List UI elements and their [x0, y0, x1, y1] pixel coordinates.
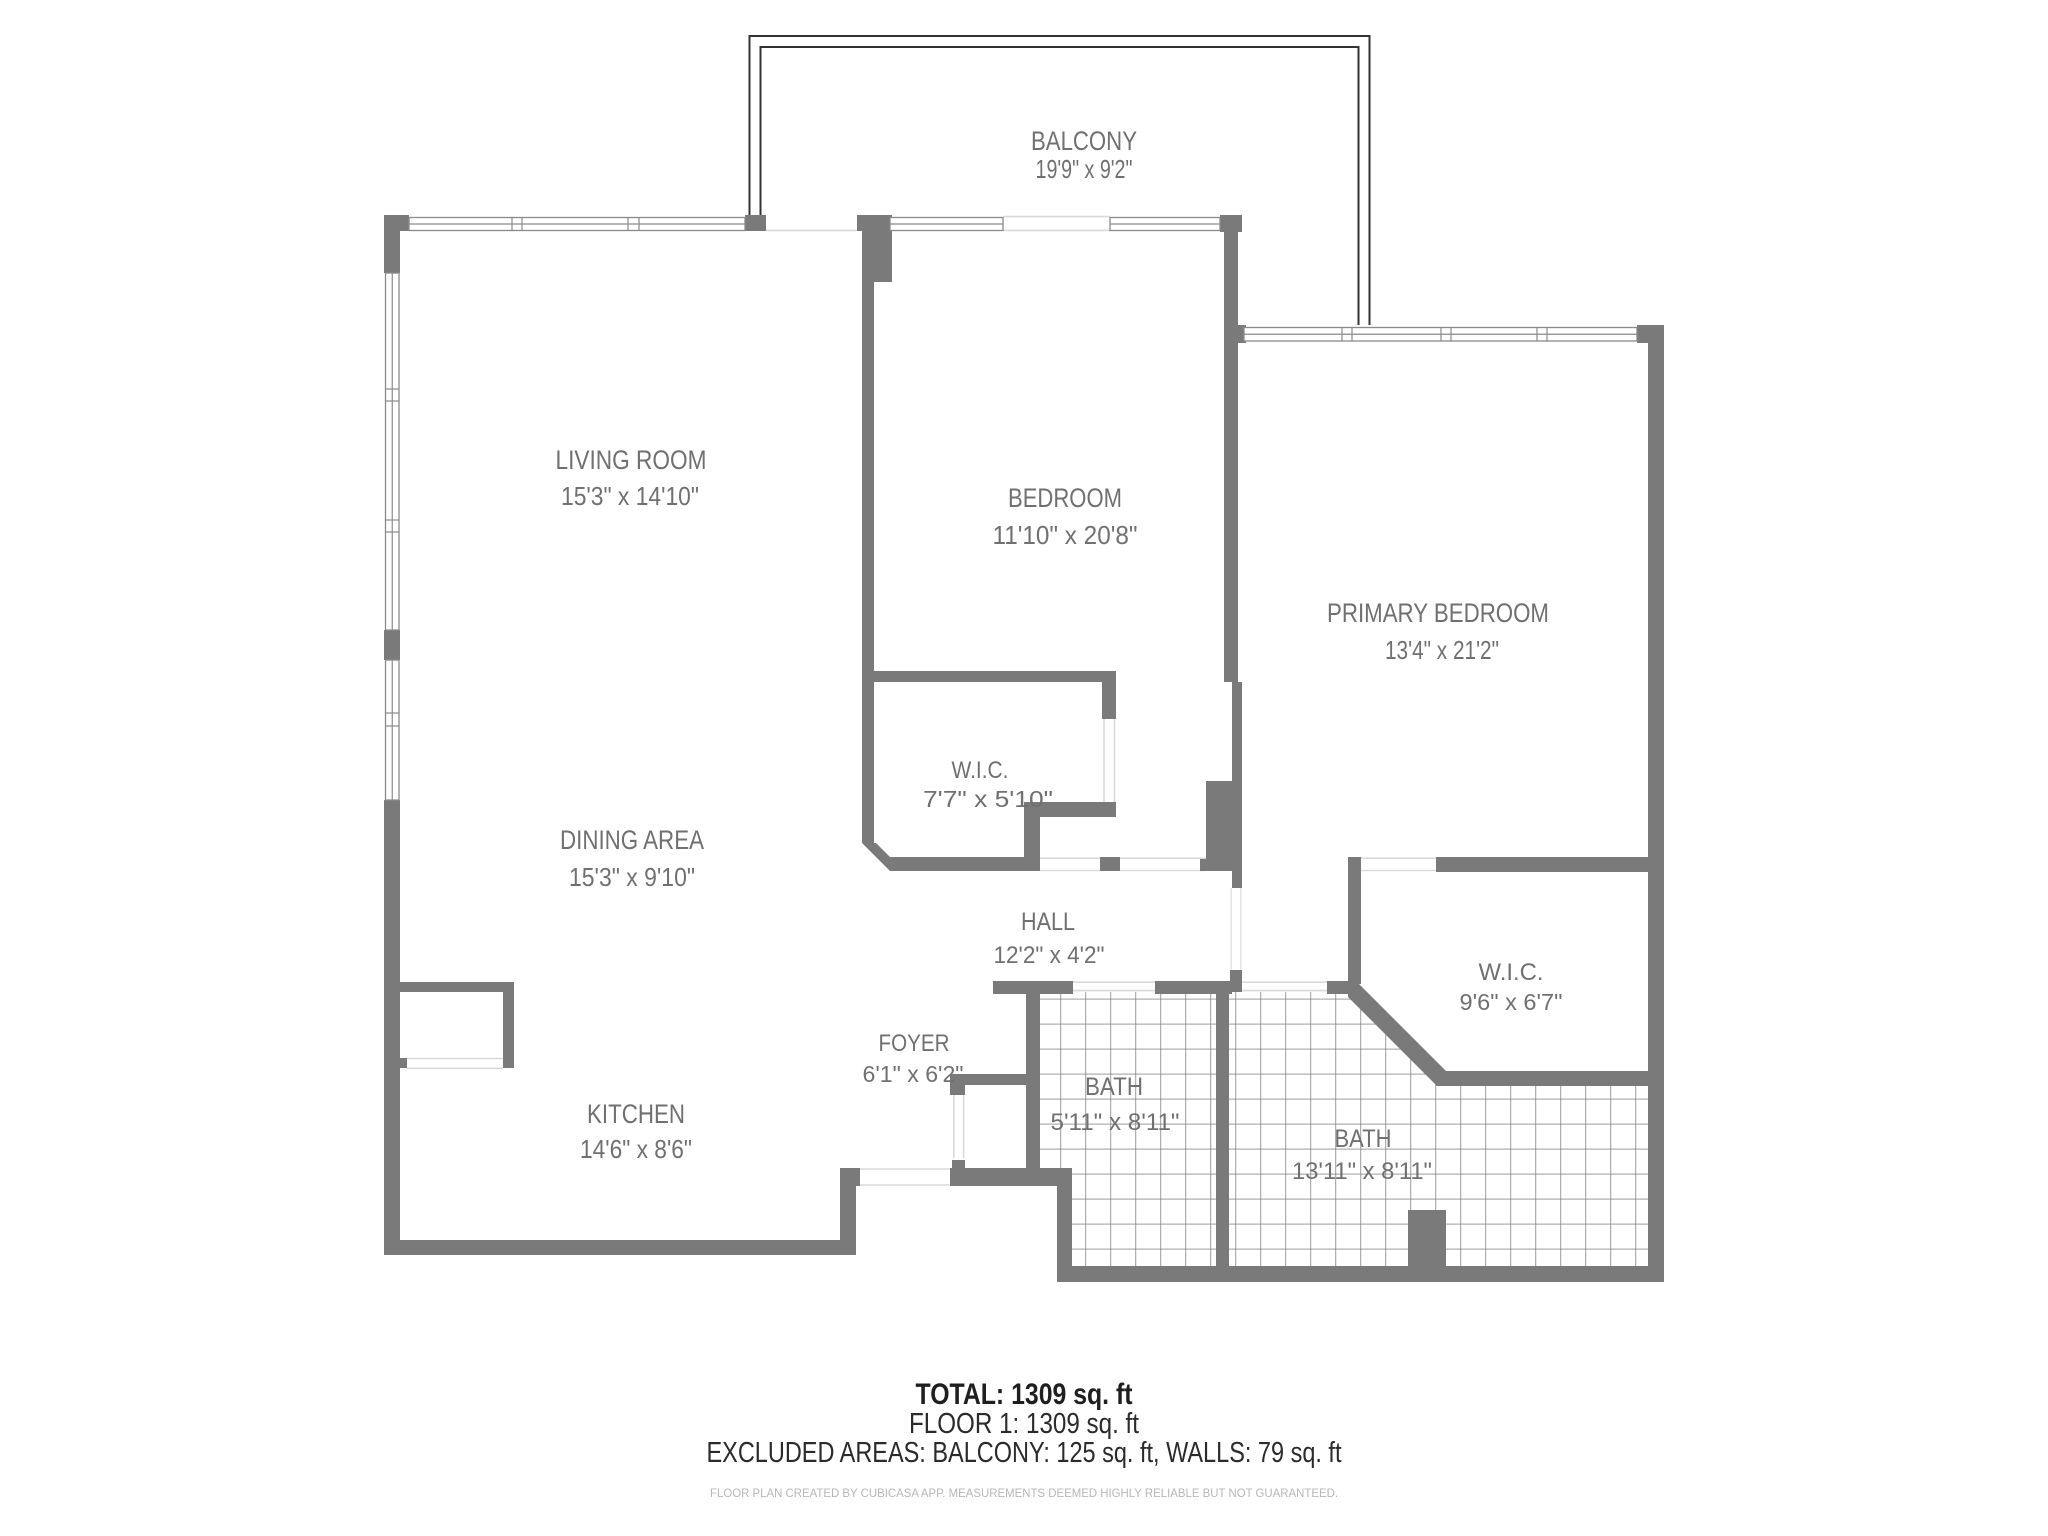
- svg-text:14'6" x 8'6": 14'6" x 8'6": [580, 1134, 692, 1164]
- svg-text:12'2" x 4'2": 12'2" x 4'2": [994, 942, 1105, 969]
- svg-text:19'9" x 9'2": 19'9" x 9'2": [1036, 154, 1133, 184]
- svg-text:13'4" x 21'2": 13'4" x 21'2": [1385, 635, 1499, 665]
- svg-text:FOYER: FOYER: [879, 1030, 950, 1057]
- svg-text:7'7" x 5'10": 7'7" x 5'10": [923, 786, 1053, 812]
- svg-text:EXCLUDED AREAS: BALCONY: 125 s: EXCLUDED AREAS: BALCONY: 125 sq. ft, WAL…: [707, 1437, 1342, 1469]
- svg-text:W.I.C.: W.I.C.: [952, 757, 1009, 784]
- svg-text:13'11" x 8'11": 13'11" x 8'11": [1292, 1158, 1432, 1185]
- svg-text:BALCONY: BALCONY: [1031, 126, 1137, 156]
- svg-text:TOTAL: 1309 sq. ft: TOTAL: 1309 sq. ft: [916, 1378, 1133, 1411]
- svg-text:15'3" x 14'10": 15'3" x 14'10": [561, 481, 699, 511]
- svg-text:HALL: HALL: [1021, 908, 1075, 936]
- svg-text:LIVING ROOM: LIVING ROOM: [556, 445, 707, 475]
- svg-text:DINING AREA: DINING AREA: [560, 825, 704, 855]
- svg-text:11'10" x 20'8": 11'10" x 20'8": [993, 520, 1138, 550]
- svg-text:BATH: BATH: [1335, 1125, 1392, 1153]
- svg-text:BEDROOM: BEDROOM: [1008, 483, 1122, 513]
- svg-text:5'11" x 8'11": 5'11" x 8'11": [1051, 1109, 1180, 1136]
- svg-text:KITCHEN: KITCHEN: [587, 1099, 685, 1129]
- svg-text:9'6" x 6'7": 9'6" x 6'7": [1460, 989, 1563, 1015]
- svg-text:W.I.C.: W.I.C.: [1479, 959, 1544, 986]
- svg-text:FLOOR 1: 1309 sq. ft: FLOOR 1: 1309 sq. ft: [909, 1408, 1139, 1440]
- svg-text:BATH: BATH: [1085, 1073, 1143, 1101]
- svg-text:6'1" x 6'2": 6'1" x 6'2": [863, 1061, 964, 1087]
- svg-text:15'3" x 9'10": 15'3" x 9'10": [569, 862, 695, 892]
- svg-text:FLOOR PLAN CREATED BY CUBICASA: FLOOR PLAN CREATED BY CUBICASA APP. MEAS…: [710, 1486, 1338, 1500]
- svg-text:PRIMARY BEDROOM: PRIMARY BEDROOM: [1327, 598, 1549, 628]
